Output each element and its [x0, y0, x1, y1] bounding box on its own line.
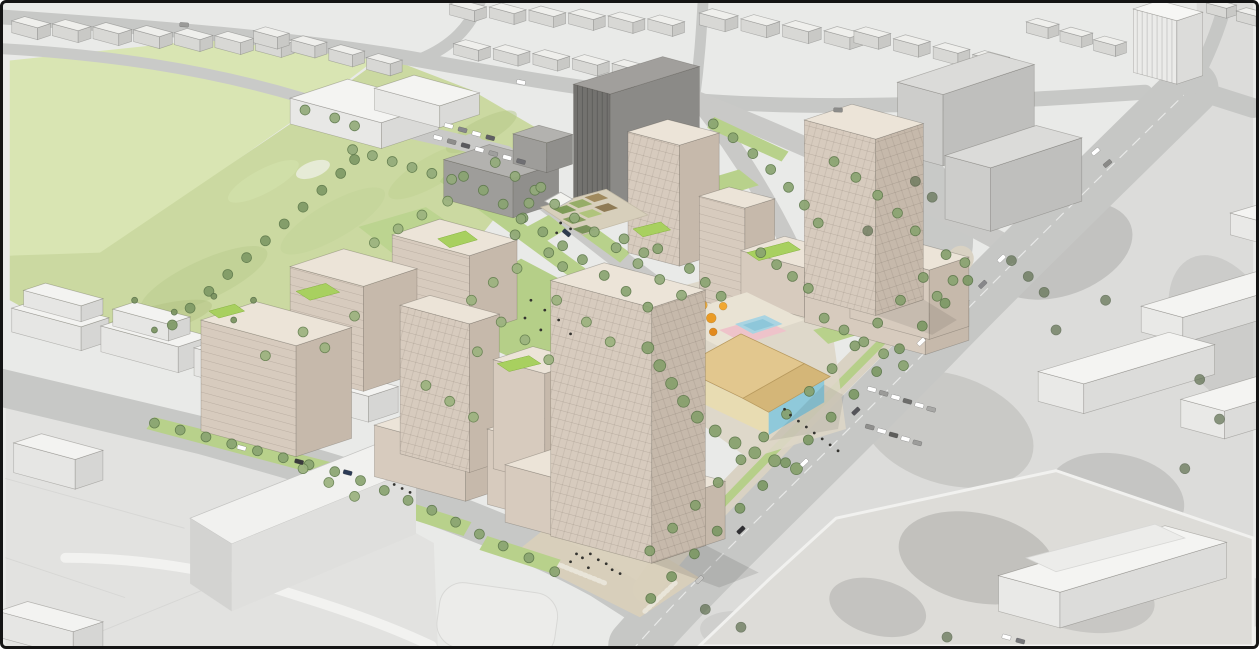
people-paseo — [530, 299, 533, 302]
tower-frontage-trees — [772, 260, 782, 270]
poly — [1133, 9, 1177, 84]
people-plaza — [605, 562, 608, 565]
playground-umbrellas — [706, 313, 716, 323]
tower-frontage-trees — [819, 313, 829, 323]
northeast-street-trees — [799, 200, 809, 210]
street-trees — [558, 241, 568, 251]
north-edge-trees — [387, 157, 397, 167]
community-centre-trees — [666, 378, 678, 390]
northeast-street-trees — [748, 149, 758, 159]
people-plaza — [587, 566, 590, 569]
south-road-trees — [201, 432, 211, 442]
street-trees — [621, 286, 631, 296]
south-road-trees — [451, 517, 461, 527]
south-road-trees — [550, 567, 560, 577]
garden-trees — [516, 214, 526, 224]
garden-trees — [524, 198, 534, 208]
arterial-street-trees — [941, 250, 951, 260]
people-community-centre — [821, 438, 824, 441]
tower-frontage-trees — [859, 337, 869, 347]
tower-frontage-trees — [898, 361, 908, 371]
south-road-trees — [227, 439, 237, 449]
photo-context-trees — [927, 192, 937, 202]
south-road-trees — [253, 446, 263, 456]
arterial-street-trees — [826, 412, 836, 422]
playground-umbrellas — [719, 302, 727, 310]
courtyard-trees — [467, 295, 477, 305]
community-centre-trees — [678, 395, 690, 407]
playground-umbrellas — [709, 328, 717, 336]
north-edge-trees — [300, 105, 310, 115]
park-edge-trees — [185, 303, 195, 313]
park-scatter-trees — [231, 317, 237, 323]
photo-context-trees — [1006, 256, 1016, 266]
arterial-street-trees — [689, 549, 699, 559]
rendering-frame — [0, 0, 1259, 649]
poly — [652, 289, 706, 562]
garden-trees — [544, 248, 554, 258]
south-road-trees — [149, 418, 159, 428]
people-paseo — [569, 333, 572, 336]
people-paseo — [557, 319, 560, 322]
arterial-street-trees — [827, 364, 837, 374]
people-plaza — [575, 552, 578, 555]
masterplan-aerial-rendering — [3, 3, 1256, 646]
people-community-centre — [789, 414, 792, 417]
street-trees — [599, 271, 609, 281]
street-trees — [550, 199, 560, 209]
park-edge-trees — [260, 236, 270, 246]
courtyard-trees — [350, 311, 360, 321]
community-centre-trees — [749, 447, 761, 459]
tower-frontage-trees — [684, 264, 694, 274]
tower-frontage-trees — [716, 291, 726, 301]
white-tower — [1177, 12, 1203, 84]
northeast-street-trees — [784, 182, 794, 192]
arterial-street-trees — [918, 272, 928, 282]
park-edge-trees — [317, 185, 327, 195]
street-trees — [577, 255, 587, 265]
street-trees — [643, 302, 653, 312]
courtyard-trees — [393, 224, 403, 234]
arterial-street-trees — [667, 572, 677, 582]
north-edge-trees — [330, 113, 340, 123]
tower-frontage-trees — [839, 325, 849, 335]
people-southwest — [393, 483, 396, 486]
arterial-street-trees — [917, 321, 927, 331]
northeast-street-trees — [766, 164, 776, 174]
northeast-street-trees — [829, 157, 839, 167]
arterial-street-trees — [895, 344, 905, 354]
street-trees — [633, 259, 643, 269]
park-edge-trees — [336, 168, 346, 178]
street-trees — [510, 171, 520, 181]
poly — [400, 305, 469, 471]
community-centre-trees — [709, 425, 721, 437]
people-community-centre — [797, 420, 800, 423]
north-edge-trees — [348, 145, 358, 155]
courtyard-trees — [443, 196, 453, 206]
courtyard-trees — [369, 238, 379, 248]
tower-frontage-trees — [803, 283, 813, 293]
arterial-street-trees — [713, 478, 723, 488]
community-centre-trees — [642, 342, 654, 354]
people-paseo — [539, 329, 542, 332]
arterial-street-trees — [803, 435, 813, 445]
northeast-street-trees — [873, 190, 883, 200]
garden-trees — [639, 248, 649, 258]
people-community-centre — [783, 408, 786, 411]
courtyard-trees — [298, 327, 308, 337]
south-road-trees — [175, 425, 185, 435]
photo-context-trees — [1195, 375, 1205, 385]
people-plaza — [589, 552, 592, 555]
cars-on-roads — [834, 108, 843, 113]
park-edge-trees — [242, 253, 252, 263]
south-road-trees — [330, 467, 340, 477]
northeast-street-trees — [813, 218, 823, 228]
arterial-street-trees — [668, 523, 678, 533]
courtyard-trees — [298, 464, 308, 474]
photo-context-trees — [736, 622, 746, 632]
south-road-trees — [379, 485, 389, 495]
park-edge-trees — [223, 270, 233, 280]
park-edge-trees — [298, 202, 308, 212]
northeast-street-trees — [893, 208, 903, 218]
park-edge-trees — [279, 219, 289, 229]
park-edge-trees — [167, 320, 177, 330]
poly — [804, 120, 875, 315]
photo-context-trees — [910, 176, 920, 186]
arterial-street-trees — [781, 458, 791, 468]
garden-trees — [536, 182, 546, 192]
poly — [876, 123, 924, 315]
park-edge-trees — [350, 155, 360, 165]
street-trees — [538, 227, 548, 237]
park-scatter-trees — [251, 297, 257, 303]
tower-frontage-trees — [788, 271, 798, 281]
courtyard-trees — [581, 317, 591, 327]
tower-frontage-trees — [960, 258, 970, 268]
north-edge-trees — [350, 121, 360, 131]
street-trees — [570, 213, 580, 223]
street-trees — [459, 171, 469, 181]
tower-frontage-trees — [756, 248, 766, 258]
arterial-street-trees — [850, 341, 860, 351]
courtyard-trees — [445, 396, 455, 406]
people-community-centre — [813, 432, 816, 435]
tower-frontage-trees — [653, 244, 663, 254]
cars-on-roads — [180, 22, 189, 27]
street-trees — [677, 290, 687, 300]
street-trees — [478, 185, 488, 195]
arterial-street-trees — [735, 503, 745, 513]
courtyard-trees — [469, 412, 479, 422]
arterial-street-trees — [736, 455, 746, 465]
street-trees — [490, 158, 500, 168]
courtyard-trees — [488, 277, 498, 287]
poly — [551, 280, 652, 562]
photo-context-trees — [1051, 325, 1061, 335]
arterial-street-trees — [804, 386, 814, 396]
photo-context-trees — [863, 226, 873, 236]
photo-context-trees — [1101, 295, 1111, 305]
arterial-street-trees — [645, 546, 655, 556]
northeast-street-trees — [910, 226, 920, 236]
arterial-street-trees — [646, 593, 656, 603]
south-road-trees — [524, 553, 534, 563]
park-scatter-trees — [151, 327, 157, 333]
people-community-centre — [837, 449, 840, 452]
park-scatter-trees — [132, 297, 138, 303]
courtyard-trees — [552, 295, 562, 305]
community-centre-trees — [691, 411, 703, 423]
tower-frontage-trees — [948, 275, 958, 285]
people-plaza — [611, 568, 614, 571]
people-plaza — [581, 556, 584, 559]
garden-trees — [619, 234, 629, 244]
arterial-street-trees — [690, 500, 700, 510]
tower-frontage-trees — [879, 349, 889, 359]
arterial-street-trees — [872, 367, 882, 377]
people-paseo — [524, 317, 527, 320]
photo-context-trees — [1180, 464, 1190, 474]
south-road-trees — [474, 529, 484, 539]
people-plaza — [619, 572, 622, 575]
arterial-street-trees — [896, 295, 906, 305]
tower-frontage-trees — [700, 277, 710, 287]
garden-trees — [510, 230, 520, 240]
community-centre-trees — [769, 455, 781, 467]
north-edge-trees — [427, 168, 437, 178]
street-trees — [498, 199, 508, 209]
people-community-centre — [805, 426, 808, 429]
photo-context-trees — [1215, 414, 1225, 424]
courtyard-trees — [350, 491, 360, 501]
people-southwest — [409, 491, 412, 494]
arterial-street-trees — [758, 481, 768, 491]
courtyard-trees — [544, 355, 554, 365]
courtyard-trees — [520, 335, 530, 345]
south-road-trees — [356, 476, 366, 486]
courtyard-trees — [320, 343, 330, 353]
arterial-street-trees — [940, 298, 950, 308]
arterial-street-trees — [849, 389, 859, 399]
park-scatter-trees — [211, 293, 217, 299]
people-community-centre — [829, 443, 832, 446]
arterial-street-trees — [873, 318, 883, 328]
people-garden — [559, 222, 562, 225]
courtyard-trees — [417, 210, 427, 220]
existing-grey-slab — [945, 156, 991, 232]
south-road-trees — [498, 541, 508, 551]
photo-context-trees — [1023, 271, 1033, 281]
courtyard-trees — [421, 380, 431, 390]
courtyard-trees — [472, 347, 482, 357]
people-southwest — [401, 487, 404, 490]
people-paseo — [543, 309, 546, 312]
arterial-street-trees — [963, 275, 973, 285]
south-road-trees — [427, 505, 437, 515]
photo-context-trees — [700, 604, 710, 614]
north-edge-trees — [447, 174, 457, 184]
northeast-street-trees — [728, 133, 738, 143]
courtyard-trees — [324, 478, 334, 488]
street-trees — [611, 243, 621, 253]
tower-frontage-trees — [932, 291, 942, 301]
photo-context-trees — [942, 632, 952, 642]
north-edge-trees — [367, 151, 377, 161]
people-plaza — [569, 560, 572, 563]
arterial-street-trees — [759, 432, 769, 442]
courtyard-trees — [512, 264, 522, 274]
garden-trees — [558, 262, 568, 272]
people-plaza — [597, 558, 600, 561]
northeast-street-trees — [851, 172, 861, 182]
street-trees — [655, 274, 665, 284]
arterial-street-trees — [712, 526, 722, 536]
north-edge-trees — [407, 163, 417, 173]
courtyard-trees — [496, 317, 506, 327]
park-scatter-trees — [171, 309, 177, 315]
people-garden — [569, 228, 572, 231]
photo-context-trees — [1039, 287, 1049, 297]
northeast-street-trees — [708, 119, 718, 129]
community-centre-trees — [654, 360, 666, 372]
courtyard-trees — [605, 337, 615, 347]
courtyard-trees — [260, 351, 270, 361]
community-centre-trees — [729, 437, 741, 449]
south-road-trees — [403, 495, 413, 505]
south-road-trees — [278, 453, 288, 463]
people-garden — [555, 231, 558, 234]
street-trees — [589, 227, 599, 237]
